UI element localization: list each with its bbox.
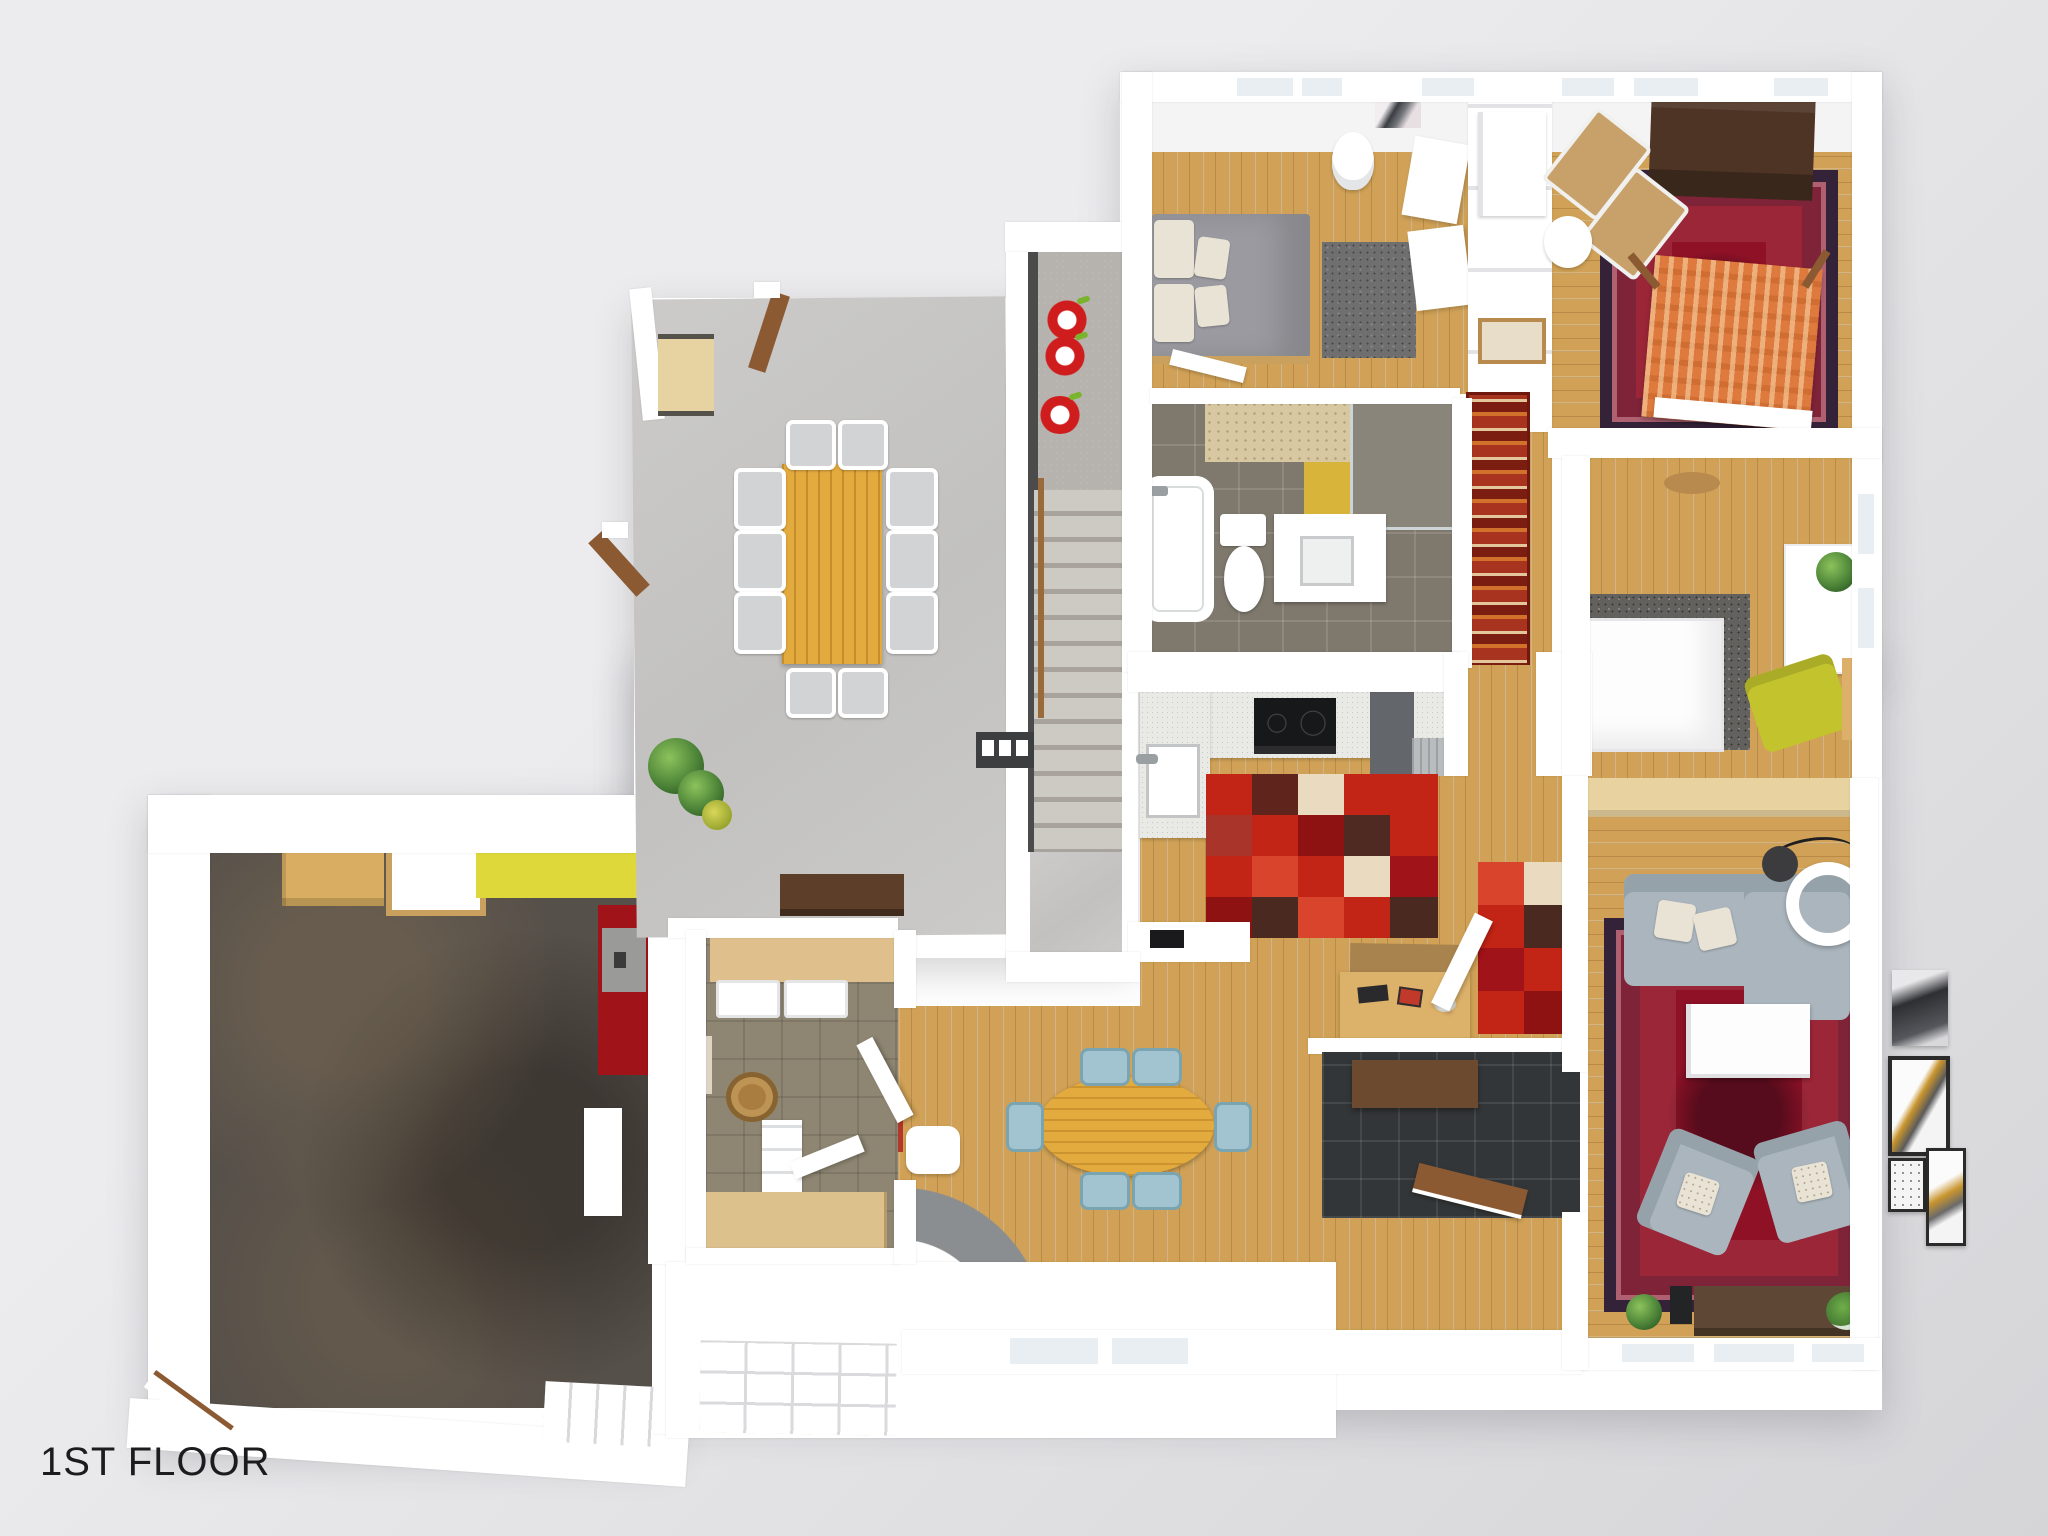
rug-patch bbox=[1298, 774, 1344, 815]
bedroom1-wall-bottom bbox=[1150, 388, 1460, 404]
rug-patch bbox=[1344, 815, 1390, 856]
terrace-post-north bbox=[754, 282, 780, 298]
kitchen-wall-top bbox=[1128, 652, 1458, 692]
staircase bbox=[1034, 490, 1122, 852]
bath-yellow-mat bbox=[1304, 462, 1350, 514]
coffee-table bbox=[1686, 1004, 1810, 1078]
garage-wall-left bbox=[148, 795, 210, 1405]
east-window bbox=[1856, 586, 1876, 650]
nook-wall-left-lower bbox=[894, 1180, 916, 1264]
bath-faucet bbox=[1150, 486, 1168, 496]
armchair-pillow bbox=[1791, 1161, 1834, 1204]
stairwell-wall-top bbox=[1005, 222, 1138, 252]
garage-door-panel bbox=[584, 1108, 622, 1216]
bedroom3-wall-left bbox=[1562, 456, 1590, 776]
sofa-pillow bbox=[1653, 899, 1696, 942]
living-console-shelf bbox=[1588, 778, 1878, 816]
wing-wall-left bbox=[1122, 72, 1152, 672]
dining-chair bbox=[886, 592, 938, 654]
bathtub bbox=[1142, 476, 1214, 622]
switch bbox=[1016, 740, 1028, 756]
terrace-post-south bbox=[602, 522, 628, 538]
bedroom2-wall-bottom bbox=[1548, 428, 1882, 458]
dining-chair bbox=[838, 420, 888, 470]
genkan-shelf bbox=[1352, 1060, 1478, 1108]
bedroom3-bed-white bbox=[1576, 618, 1724, 752]
rug-patch bbox=[1298, 815, 1344, 856]
bedroom1-shag-rug bbox=[1322, 242, 1416, 358]
arc-lamp-counterweight bbox=[1762, 846, 1798, 882]
living-window bbox=[1620, 1342, 1696, 1364]
bed-pillow bbox=[1193, 236, 1230, 280]
floor-plan-canvas: 1ST FLOOR bbox=[0, 0, 2048, 1536]
toilet-tank bbox=[1220, 514, 1266, 546]
dining-chair bbox=[786, 668, 836, 718]
cooktop bbox=[1254, 698, 1336, 754]
wall-art-frame bbox=[1888, 1056, 1950, 1156]
blue-chair bbox=[1006, 1102, 1044, 1152]
mudroom-closet-floor bbox=[705, 1192, 887, 1250]
closet-mirror bbox=[1478, 318, 1546, 364]
toilet-bowl bbox=[1224, 546, 1264, 612]
terrace-bench bbox=[780, 874, 904, 916]
north-window bbox=[1772, 76, 1830, 98]
nook-wall-top bbox=[1006, 952, 1140, 982]
rug-patch bbox=[1390, 897, 1438, 938]
wicker-basket bbox=[726, 1072, 778, 1122]
wall-art-frame bbox=[1892, 970, 1948, 1046]
bedroom2-side-table bbox=[1544, 216, 1592, 268]
dining-table bbox=[782, 464, 882, 664]
bedroom1-wardrobe-door bbox=[1407, 225, 1472, 311]
nook-wall-left bbox=[894, 930, 916, 1008]
north-window bbox=[1632, 76, 1700, 98]
dining-chair bbox=[734, 468, 786, 530]
desk-sushi-board bbox=[1357, 984, 1389, 1003]
bedroom2-dresser bbox=[1648, 91, 1816, 201]
living-wall-left-lower bbox=[1562, 1212, 1588, 1370]
rug-patch bbox=[1252, 897, 1298, 938]
apple-decal bbox=[1042, 336, 1088, 376]
kitchen-tall-unit bbox=[1370, 692, 1414, 776]
dining-chair bbox=[734, 530, 786, 592]
mudroom-counter bbox=[710, 934, 896, 982]
terrace-sideboard bbox=[658, 334, 714, 416]
porch-deck bbox=[699, 1340, 897, 1435]
east-window bbox=[1856, 492, 1876, 556]
blue-chair bbox=[1132, 1172, 1182, 1210]
bedroom3-plant bbox=[1816, 552, 1856, 592]
garage-wall-top bbox=[148, 795, 660, 853]
blue-chair bbox=[1214, 1102, 1252, 1152]
blue-chair bbox=[1080, 1048, 1130, 1086]
bathroom-beige-tile-room bbox=[1205, 400, 1373, 462]
washer bbox=[716, 980, 780, 1018]
south-window bbox=[1008, 1336, 1100, 1366]
drawer-unit bbox=[762, 1120, 802, 1194]
mudroom-wall-bottom bbox=[686, 1248, 898, 1264]
stair-bottom-landing bbox=[1030, 852, 1122, 956]
bath-wall-right bbox=[1452, 398, 1472, 668]
living-window bbox=[1810, 1342, 1866, 1364]
rug-patch bbox=[1252, 856, 1298, 897]
living-plant bbox=[1626, 1294, 1662, 1330]
blue-chair bbox=[1080, 1172, 1130, 1210]
dining-chair bbox=[886, 530, 938, 592]
dining-chair bbox=[786, 420, 836, 470]
south-window bbox=[1110, 1336, 1190, 1366]
rug-patch bbox=[1252, 774, 1298, 815]
rug-patch bbox=[1206, 815, 1252, 856]
garage-whiteboard bbox=[386, 844, 486, 916]
island-ledge bbox=[1128, 922, 1250, 962]
north-window bbox=[1560, 76, 1616, 98]
rug-patch bbox=[1390, 774, 1438, 815]
island-tray bbox=[1150, 930, 1184, 948]
mudroom-wall-left bbox=[686, 930, 706, 1260]
wing-wall-right-upper bbox=[1852, 72, 1882, 464]
kitchen-wall-stub bbox=[1444, 652, 1468, 776]
wall-art-frame bbox=[1888, 1158, 1926, 1212]
bed-pillow bbox=[1194, 284, 1230, 327]
living-wall-right bbox=[1850, 778, 1878, 1370]
south-wall bbox=[902, 1330, 1582, 1374]
blue-chair bbox=[1132, 1048, 1182, 1086]
closet-wood-decor bbox=[1664, 472, 1720, 494]
bed-pillow bbox=[1154, 220, 1194, 278]
switch bbox=[982, 740, 994, 756]
dryer bbox=[784, 980, 848, 1018]
bed-pillow bbox=[1154, 284, 1194, 342]
vanity-sink bbox=[1300, 536, 1354, 586]
stairwell-wall-left bbox=[1006, 252, 1030, 958]
living-wall-left-upper bbox=[1562, 776, 1588, 1072]
oval-table bbox=[1038, 1076, 1214, 1176]
floating-desk bbox=[1478, 112, 1546, 216]
north-window bbox=[1420, 76, 1476, 98]
bedroom1-egg-chair bbox=[1332, 132, 1374, 190]
switch bbox=[999, 740, 1011, 756]
apple-decal bbox=[1038, 396, 1082, 434]
rug-patch bbox=[1478, 862, 1524, 905]
white-seat bbox=[906, 1126, 960, 1174]
floor-label: 1ST FLOOR bbox=[40, 1440, 271, 1485]
rug-patch bbox=[1298, 897, 1344, 938]
music-stand bbox=[1670, 1286, 1692, 1324]
kitchen-faucet bbox=[1136, 754, 1158, 764]
garage-entry-steps bbox=[543, 1381, 656, 1447]
north-window bbox=[1235, 76, 1295, 98]
garage-mat-item bbox=[614, 952, 626, 968]
stair-handrail bbox=[1038, 478, 1044, 718]
rug-patch bbox=[1344, 856, 1390, 897]
rug-patch bbox=[1390, 856, 1438, 897]
dining-chair bbox=[838, 668, 888, 718]
dining-chair bbox=[886, 468, 938, 530]
living-window bbox=[1712, 1342, 1796, 1364]
terrace-plant-small bbox=[702, 800, 732, 830]
shower bbox=[1350, 400, 1460, 530]
rug-patch bbox=[1478, 948, 1524, 991]
desk-food-plate bbox=[1397, 986, 1423, 1007]
north-window bbox=[1300, 76, 1344, 98]
wall-art-frame bbox=[1926, 1148, 1966, 1246]
dining-chair bbox=[734, 592, 786, 654]
